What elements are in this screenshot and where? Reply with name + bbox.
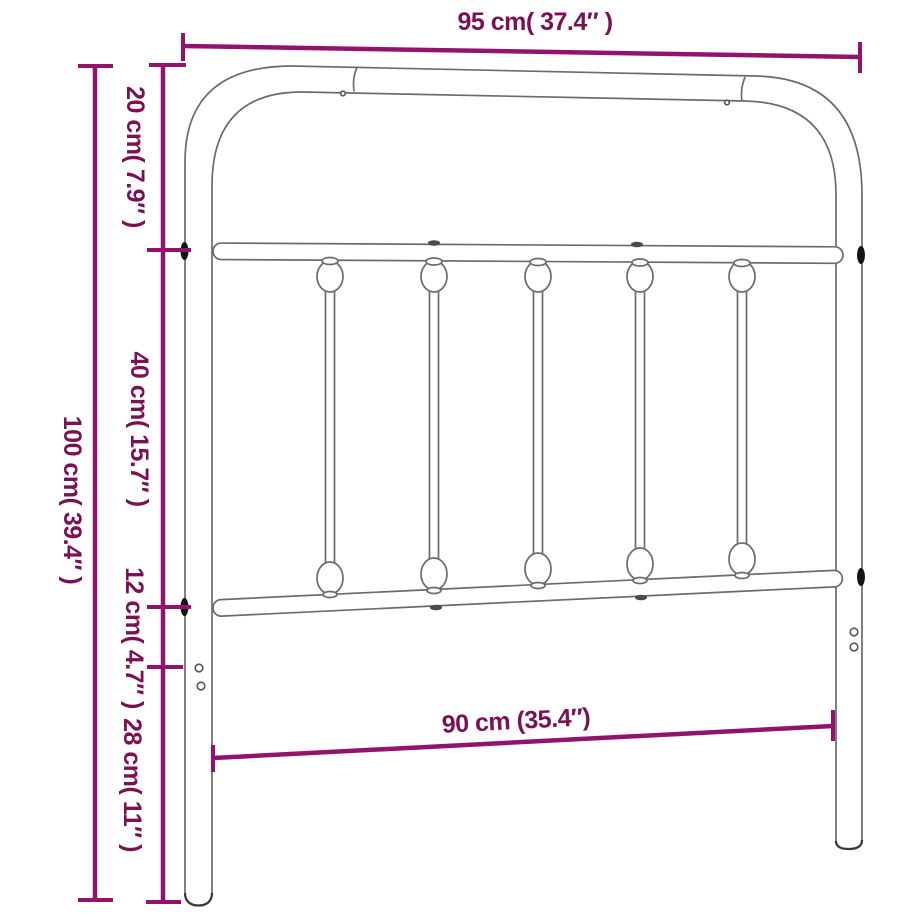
label-segment-20: 20 cm( 7.9″ ) (121, 86, 149, 228)
spindle-rod (636, 288, 645, 550)
spindle-top-collar (632, 259, 648, 266)
spindle-bottom-finial (525, 553, 551, 585)
bolt-hole (195, 664, 203, 672)
spindle-rod (430, 288, 439, 560)
spindle-top-collar (530, 259, 546, 266)
label-inner-width: 90 cm (35.4″) (441, 703, 591, 739)
bolt-hole (850, 643, 858, 651)
bolt-hole (197, 682, 205, 690)
left-leg-bottom-cap (185, 893, 212, 906)
diagram-canvas: 95 cm( 37.4″ ) 100 cm( 39.4″ ) 20 cm( 7.… (0, 0, 920, 920)
spindle-top-collar (734, 260, 750, 267)
spindle-rod (738, 288, 747, 545)
spindle-4 (627, 259, 653, 584)
label-segment-12: 12 cm( 4.7″ ) (120, 567, 148, 709)
spindle-5 (729, 260, 755, 579)
spindle-bottom-foot (735, 573, 749, 579)
label-segment-28: 28 cm( 11″ ) (118, 718, 146, 852)
spindles (317, 258, 755, 598)
hardware-details (181, 240, 866, 690)
top-rail-seam-left (353, 67, 357, 92)
spindle-bottom-foot (323, 592, 337, 598)
spindle-2 (421, 258, 447, 594)
screw-dot (631, 242, 643, 248)
spindle-rod (326, 288, 335, 564)
spindle-bottom-foot (633, 578, 647, 584)
spindle-top-collar (426, 258, 442, 265)
dimension-labels: 95 cm( 37.4″ ) 100 cm( 39.4″ ) 20 cm( 7.… (58, 8, 613, 852)
label-total-height: 100 cm( 39.4″ ) (58, 416, 86, 585)
spindle-bottom-foot (531, 583, 545, 589)
spindle-bottom-finial (421, 558, 447, 590)
headboard-dimension-diagram: 95 cm( 37.4″ ) 100 cm( 39.4″ ) 20 cm( 7.… (0, 0, 920, 920)
spindle-rod (534, 288, 543, 555)
spindle-3 (525, 259, 551, 589)
screw-dot (635, 595, 647, 601)
top-rail-seam-right (741, 77, 745, 102)
screw-dot (428, 240, 440, 246)
spindle-top-collar (322, 258, 338, 265)
spindle-bottom-finial (317, 562, 343, 594)
joint-marker (857, 568, 865, 586)
screw-dot (430, 605, 442, 611)
bolt-hole (850, 628, 858, 636)
label-top-width: 95 cm( 37.4″ ) (457, 8, 612, 36)
spindle-bottom-finial (729, 543, 755, 575)
headboard-frame (185, 66, 862, 906)
frame-outer-contour (185, 66, 862, 893)
spindle-bottom-finial (627, 548, 653, 580)
seam-screw-left (341, 91, 346, 96)
right-leg-bottom-cap (836, 840, 862, 849)
joint-marker (857, 246, 865, 264)
dim-line (183, 46, 860, 57)
spindle-1 (317, 258, 343, 598)
seam-screw-right (725, 100, 730, 105)
dim-top-width (183, 33, 860, 73)
label-segment-40: 40 cm( 15.7″ ) (125, 351, 153, 506)
spindle-top-finial (317, 261, 343, 292)
spindle-bottom-foot (427, 588, 441, 594)
